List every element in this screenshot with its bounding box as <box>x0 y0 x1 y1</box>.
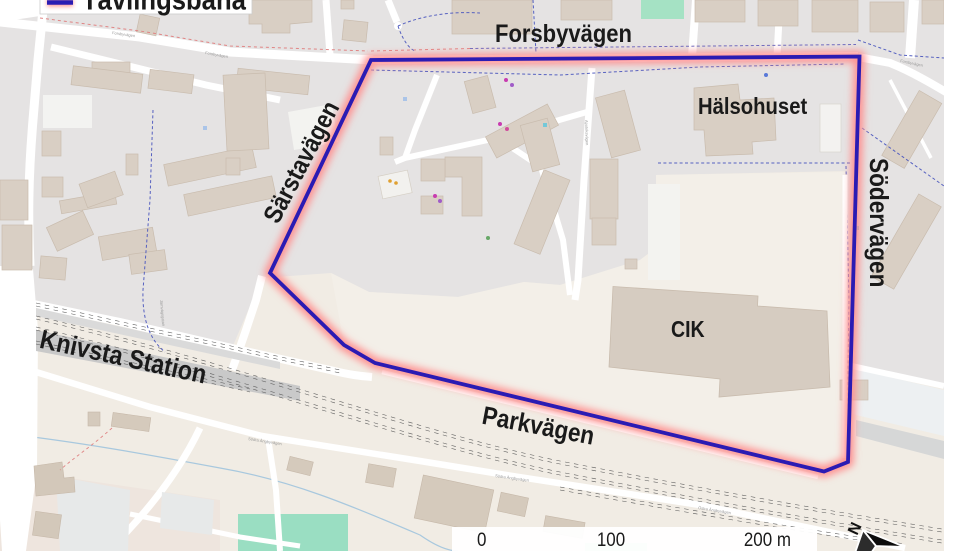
svg-text:Södervägen: Södervägen <box>864 158 893 287</box>
svg-text:Tävlingsbana: Tävlingsbana <box>82 0 246 16</box>
svg-text:200 m: 200 m <box>744 528 791 550</box>
svg-text:Hälsohuset: Hälsohuset <box>698 93 807 120</box>
svg-text:Apoteksvägen: Apoteksvägen <box>584 120 590 146</box>
svg-text:Forsbyvägen: Forsbyvägen <box>495 21 632 49</box>
svg-text:CIK: CIK <box>671 317 705 343</box>
svg-text:0: 0 <box>477 528 486 550</box>
svg-text:100: 100 <box>597 528 625 550</box>
